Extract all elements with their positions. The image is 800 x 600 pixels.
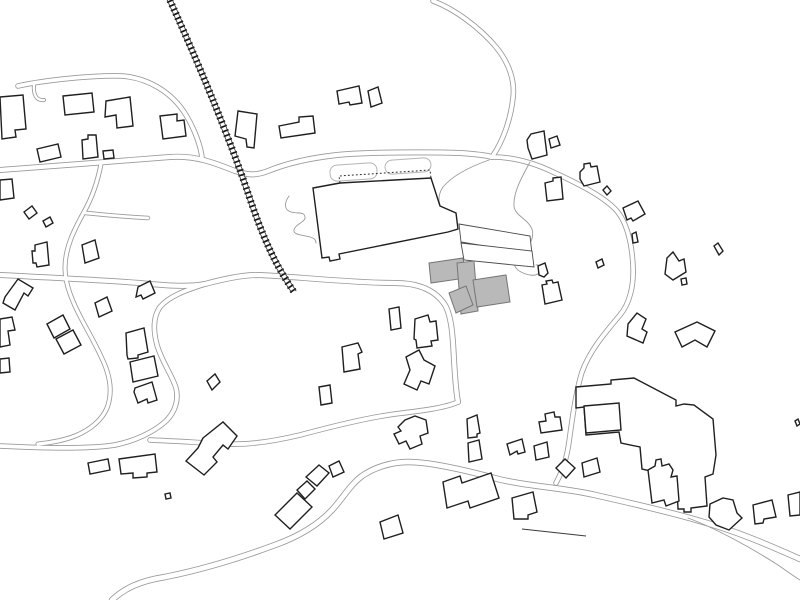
- building-lm-1: [32, 242, 49, 267]
- building-cs-4: [319, 385, 332, 405]
- building-lm-edge: [0, 179, 14, 200]
- building-bc-5: [534, 442, 549, 460]
- site-plan-canvas: [0, 0, 800, 600]
- building-tl-6: [103, 150, 114, 159]
- building-lm-sq1: [82, 240, 99, 263]
- building-tl-1: [63, 93, 94, 115]
- building-bc-2b: [468, 440, 482, 462]
- building-cs-3: [342, 343, 362, 372]
- building-er-boot-sq: [681, 278, 687, 285]
- site-plan: [0, 0, 800, 600]
- plan-background: [0, 0, 800, 600]
- building-edge-e1: [788, 492, 800, 516]
- building-ne-house: [527, 131, 547, 159]
- building-bl-dot: [165, 493, 171, 499]
- gray-extension-4: [473, 275, 510, 307]
- building-cs-1: [389, 307, 401, 330]
- complex-inner-room: [584, 403, 621, 433]
- building-edge-w2: [0, 358, 10, 373]
